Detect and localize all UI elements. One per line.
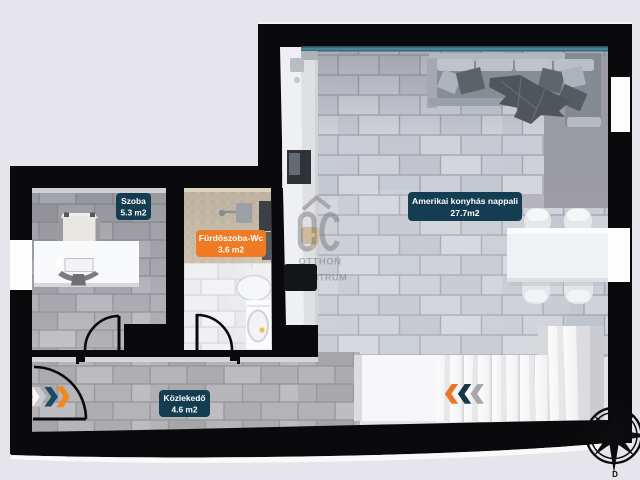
svg-text:Amerikai konyhás nappali: Amerikai konyhás nappali [412, 196, 518, 206]
svg-text:4.6 m2: 4.6 m2 [171, 405, 197, 415]
svg-text:Szoba: Szoba [121, 196, 146, 206]
svg-text:D: D [612, 470, 618, 479]
svg-text:5.3 m2: 5.3 m2 [120, 208, 146, 218]
svg-text:3.6 m2: 3.6 m2 [218, 245, 244, 255]
svg-text:Közlekedő: Közlekedő [164, 393, 206, 403]
svg-text:27.7m2: 27.7m2 [450, 208, 479, 218]
svg-text:Fürdőszoba-Wc: Fürdőszoba-Wc [199, 233, 264, 243]
